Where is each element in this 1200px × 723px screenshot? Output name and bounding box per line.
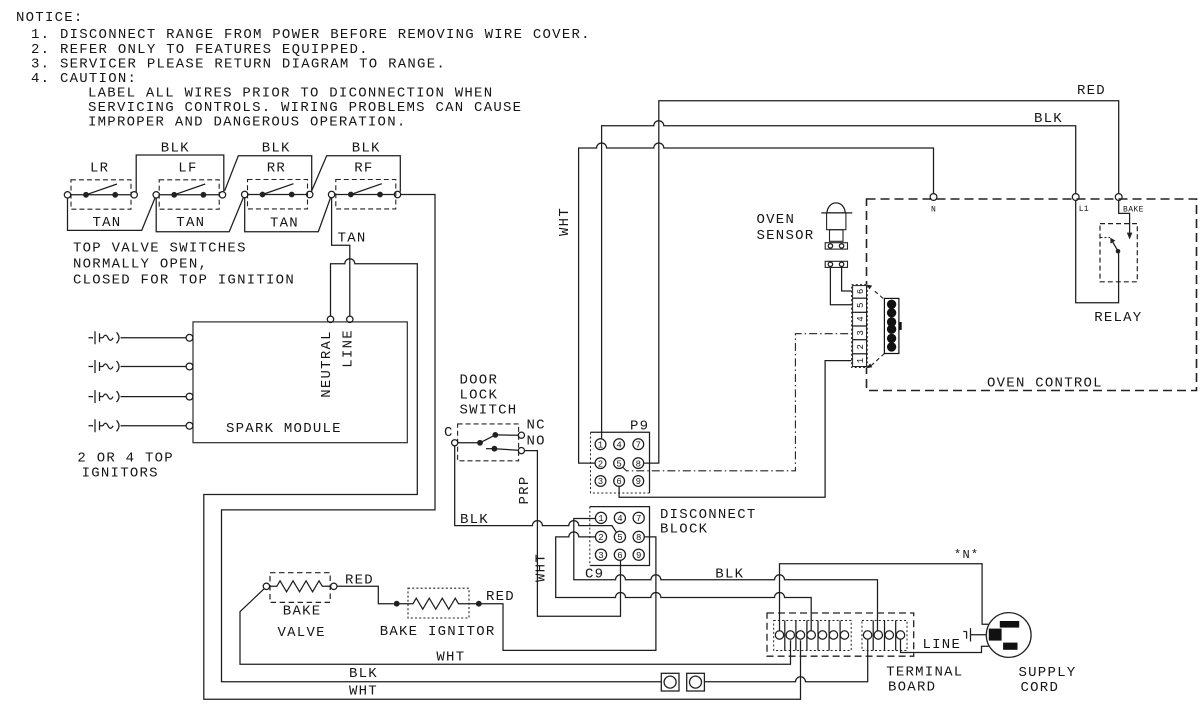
svg-text:OVEN: OVEN — [757, 212, 796, 228]
svg-text:LINE: LINE — [923, 637, 962, 653]
svg-text:2: 2 — [598, 459, 603, 469]
svg-text:LINE: LINE — [340, 329, 356, 368]
svg-text:BLK: BLK — [349, 666, 378, 682]
svg-text:NC: NC — [527, 418, 546, 434]
svg-text:BLK: BLK — [352, 141, 381, 157]
svg-text:LR: LR — [90, 161, 109, 177]
svg-text:7: 7 — [636, 514, 641, 524]
svg-text:TAN: TAN — [338, 231, 367, 247]
svg-text:8: 8 — [636, 459, 641, 469]
svg-text:LF: LF — [178, 161, 197, 177]
svg-text:RF: RF — [354, 161, 373, 177]
svg-text:2: 2 — [856, 344, 866, 349]
svg-text:RED: RED — [1077, 83, 1106, 99]
svg-text:4: 4 — [617, 514, 622, 524]
svg-text:NOTICE:: NOTICE: — [16, 10, 84, 26]
svg-text:TAN: TAN — [270, 216, 299, 232]
svg-text:VALVE: VALVE — [278, 625, 326, 641]
svg-text:BLOCK: BLOCK — [660, 522, 708, 538]
svg-text:1: 1 — [598, 440, 603, 450]
svg-text:DOOR: DOOR — [460, 373, 499, 389]
svg-text:TAN: TAN — [176, 215, 205, 231]
svg-text:IGNITORS: IGNITORS — [82, 466, 159, 482]
svg-text:N: N — [931, 206, 936, 215]
svg-text:4: 4 — [616, 440, 621, 450]
svg-text:RELAY: RELAY — [1094, 310, 1142, 326]
svg-text:OVEN CONTROL: OVEN CONTROL — [987, 376, 1103, 392]
svg-text:BAKE: BAKE — [283, 604, 322, 620]
svg-text:TOP VALVE SWITCHES: TOP VALVE SWITCHES — [73, 241, 247, 257]
svg-text:RED: RED — [486, 589, 515, 605]
svg-text:SWITCH: SWITCH — [460, 403, 518, 419]
svg-text:2: 2 — [598, 533, 603, 543]
svg-text:NEUTRAL: NEUTRAL — [319, 330, 335, 398]
svg-text:BLK: BLK — [161, 141, 190, 157]
svg-text:3: 3 — [598, 551, 603, 561]
svg-text:NORMALLY OPEN,: NORMALLY OPEN, — [73, 257, 208, 273]
svg-text:L1: L1 — [1079, 205, 1089, 214]
svg-text:PRP: PRP — [517, 476, 533, 505]
svg-text:SPARK MODULE: SPARK MODULE — [226, 421, 342, 437]
svg-text:7: 7 — [636, 440, 641, 450]
svg-text:WHT: WHT — [534, 553, 550, 582]
svg-text:BLK: BLK — [1034, 111, 1063, 127]
svg-text:SENSOR: SENSOR — [757, 228, 815, 244]
svg-text:2 OR 4 TOP: 2 OR 4 TOP — [77, 451, 174, 467]
svg-text:BOARD: BOARD — [888, 680, 936, 696]
svg-text:9: 9 — [636, 551, 641, 561]
svg-text:TERMINAL: TERMINAL — [886, 665, 963, 681]
svg-text:WHT: WHT — [436, 650, 465, 666]
svg-text:3: 3 — [856, 330, 866, 335]
svg-text:1: 1 — [856, 358, 866, 363]
svg-text:BLK: BLK — [262, 141, 291, 157]
svg-text:8: 8 — [636, 533, 641, 543]
svg-text:LOCK: LOCK — [460, 388, 499, 404]
svg-text:1: 1 — [598, 514, 603, 524]
svg-text:3: 3 — [598, 477, 603, 487]
svg-text:1. DISCONNECT RANGE FROM POWER: 1. DISCONNECT RANGE FROM POWER BEFORE RE… — [31, 27, 591, 43]
svg-text:CORD: CORD — [1021, 680, 1060, 696]
svg-text:IMPROPER AND DANGEROUS OPERATI: IMPROPER AND DANGEROUS OPERATION. — [88, 115, 407, 131]
svg-text:TAN: TAN — [93, 215, 122, 231]
svg-text:WHT: WHT — [557, 207, 573, 236]
svg-text:6: 6 — [616, 477, 621, 487]
svg-text:BAKE IGNITOR: BAKE IGNITOR — [380, 624, 496, 640]
svg-text:NO: NO — [527, 434, 546, 450]
svg-text:5: 5 — [856, 303, 866, 308]
svg-text:CLOSED FOR TOP IGNITION: CLOSED FOR TOP IGNITION — [73, 273, 295, 289]
svg-text:*N*: *N* — [954, 548, 979, 562]
svg-text:6: 6 — [617, 551, 622, 561]
svg-text:WHT: WHT — [349, 684, 378, 700]
svg-text:9: 9 — [636, 477, 641, 487]
svg-text:6: 6 — [856, 289, 866, 294]
svg-text:4: 4 — [856, 316, 866, 321]
svg-text:5: 5 — [616, 459, 621, 469]
svg-text:5: 5 — [617, 533, 622, 543]
svg-text:SUPPLY: SUPPLY — [1019, 665, 1077, 681]
svg-text:RR: RR — [267, 161, 286, 177]
svg-text:C: C — [444, 425, 454, 441]
